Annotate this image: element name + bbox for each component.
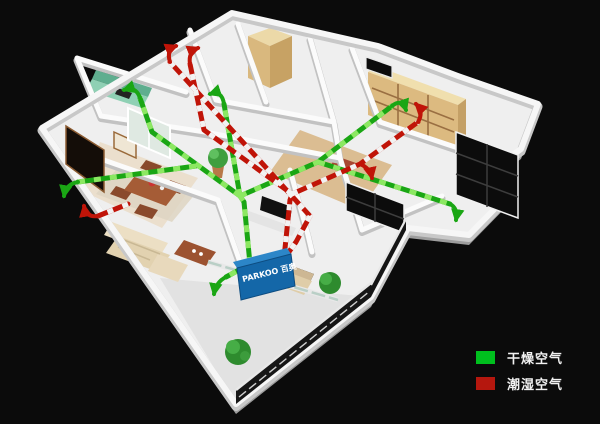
dry-air-label: 干燥空气	[507, 348, 563, 367]
humid-air-swatch	[476, 377, 495, 390]
legend-row-dry: 干燥空气	[476, 348, 563, 367]
humid-air-label: 潮湿空气	[507, 374, 563, 393]
dry-air-swatch	[476, 351, 495, 364]
balcony-plant-2	[319, 272, 341, 294]
balcony-plant-1	[225, 339, 251, 365]
legend-row-humid: 潮湿空气	[476, 374, 563, 393]
scene-stage: PARKOO 百奥 干燥空气 潮湿空气	[0, 0, 600, 424]
legend: 干燥空气 潮湿空气	[476, 348, 563, 393]
